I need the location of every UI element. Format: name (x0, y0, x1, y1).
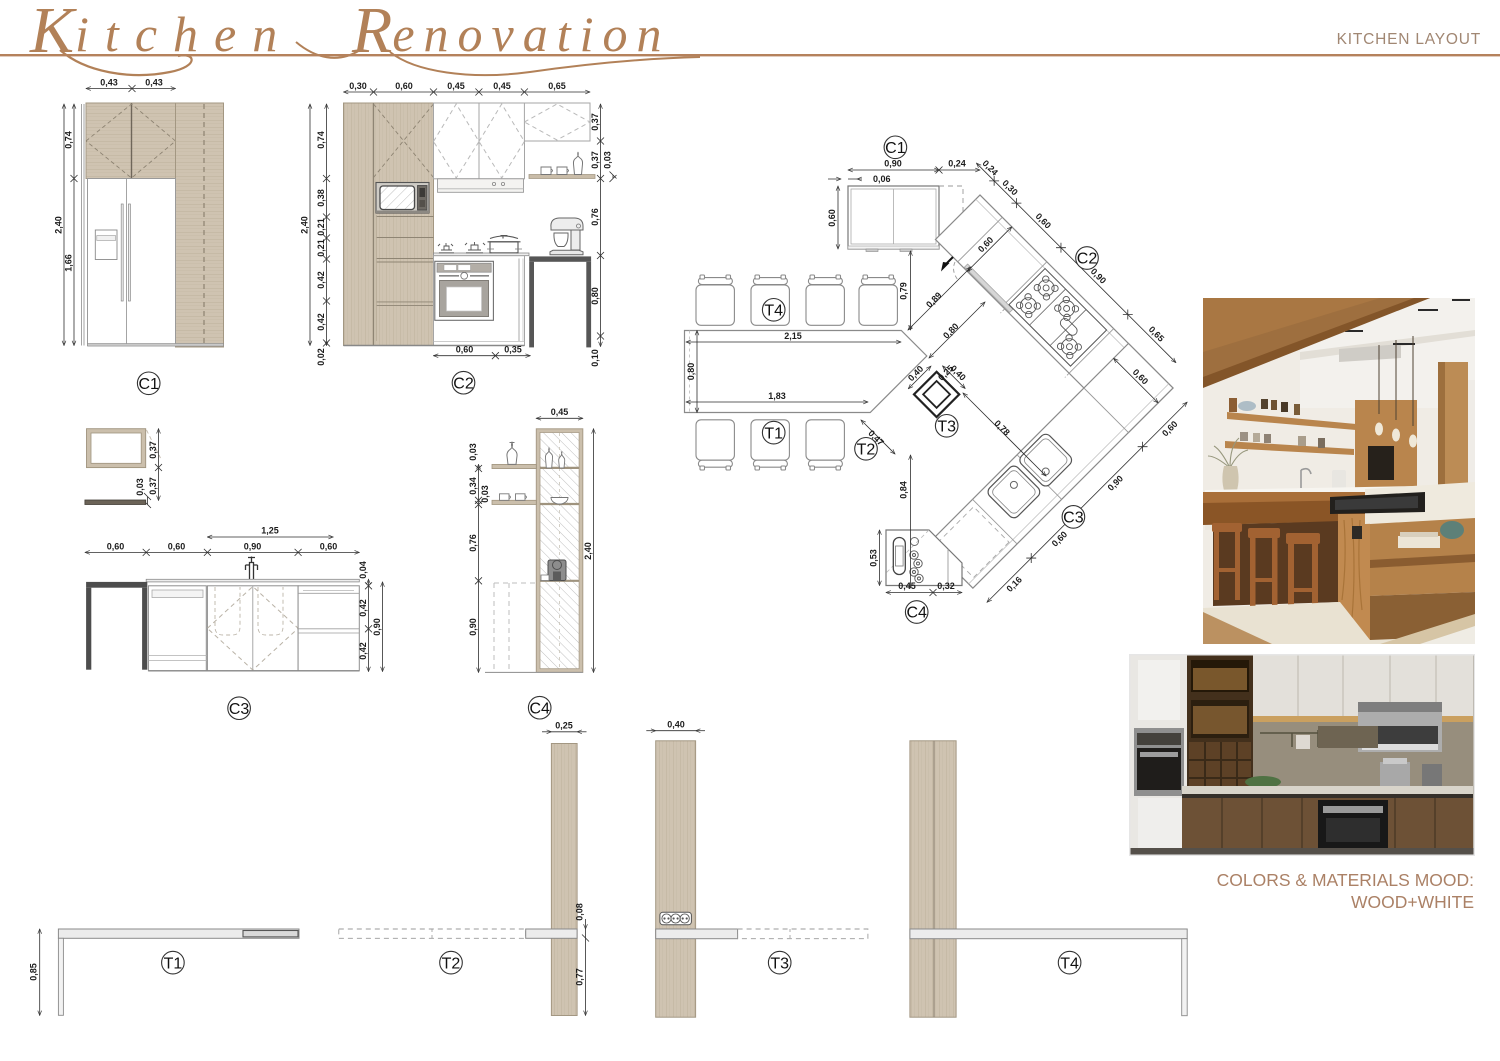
svg-text:0,80: 0,80 (686, 363, 696, 381)
svg-text:0,60: 0,60 (456, 345, 474, 355)
svg-text:0,45: 0,45 (493, 81, 511, 91)
svg-text:2,40: 2,40 (54, 216, 64, 234)
svg-text:0,53: 0,53 (869, 549, 879, 567)
svg-text:0,90: 0,90 (468, 618, 478, 636)
svg-text:0,32: 0,32 (937, 581, 955, 591)
svg-text:0,60: 0,60 (320, 541, 338, 551)
svg-text:0,25: 0,25 (555, 721, 573, 731)
svg-text:C4: C4 (529, 700, 550, 717)
svg-text:COLORS & MATERIALS MOOD:: COLORS & MATERIALS MOOD: (1217, 870, 1474, 890)
svg-text:0,80: 0,80 (590, 287, 600, 305)
svg-text:0,10: 0,10 (590, 349, 600, 367)
svg-text:0,60: 0,60 (168, 541, 186, 551)
svg-text:T4: T4 (1060, 955, 1079, 972)
svg-text:1,83: 1,83 (768, 391, 786, 401)
svg-text:0,06: 0,06 (873, 174, 891, 184)
svg-text:0,35: 0,35 (504, 345, 522, 355)
svg-text:0,76: 0,76 (468, 534, 478, 552)
svg-text:0,03: 0,03 (468, 443, 478, 461)
svg-text:0,60: 0,60 (395, 81, 413, 91)
svg-text:0,37: 0,37 (148, 477, 158, 495)
svg-text:0,03: 0,03 (480, 485, 490, 503)
svg-text:0,77: 0,77 (575, 968, 585, 986)
svg-text:0,45: 0,45 (447, 81, 465, 91)
svg-text:0,34: 0,34 (468, 477, 478, 495)
svg-text:T1: T1 (764, 425, 783, 442)
svg-text:0,30: 0,30 (349, 81, 367, 91)
svg-text:0,85: 0,85 (29, 963, 39, 981)
svg-text:0,74: 0,74 (316, 131, 326, 149)
svg-text:0,60: 0,60 (107, 541, 125, 551)
svg-text:1,66: 1,66 (64, 254, 74, 272)
svg-text:2,15: 2,15 (784, 331, 802, 341)
svg-text:0,21: 0,21 (316, 218, 326, 236)
svg-text:0,03: 0,03 (603, 151, 613, 169)
svg-text:WOOD+WHITE: WOOD+WHITE (1351, 892, 1474, 912)
svg-text:0,90: 0,90 (244, 541, 262, 551)
svg-text:0,42: 0,42 (316, 313, 326, 331)
svg-text:0,90: 0,90 (372, 618, 382, 636)
svg-text:0,37: 0,37 (148, 441, 158, 459)
svg-text:0,37: 0,37 (590, 151, 600, 169)
svg-text:0,45: 0,45 (551, 407, 569, 417)
svg-text:0,76: 0,76 (590, 208, 600, 226)
svg-text:0,38: 0,38 (316, 189, 326, 207)
svg-text:T3: T3 (770, 955, 789, 972)
svg-text:0,37: 0,37 (590, 113, 600, 131)
svg-text:0,84: 0,84 (899, 481, 909, 499)
svg-text:0,43: 0,43 (145, 78, 163, 88)
svg-text:T4: T4 (764, 303, 783, 320)
svg-text:0,02: 0,02 (316, 348, 326, 366)
svg-text:0,43: 0,43 (100, 78, 118, 88)
svg-text:2,40: 2,40 (583, 542, 593, 560)
svg-text:C1: C1 (885, 140, 906, 157)
svg-text:0,60: 0,60 (827, 209, 837, 227)
svg-text:0,42: 0,42 (358, 599, 368, 617)
svg-text:0,65: 0,65 (548, 81, 566, 91)
svg-text:C2: C2 (453, 375, 474, 392)
svg-text:0,21: 0,21 (316, 239, 326, 257)
svg-text:C2: C2 (1077, 251, 1098, 268)
svg-text:0,03: 0,03 (135, 478, 145, 496)
svg-text:C4: C4 (906, 605, 927, 622)
svg-text:0,40: 0,40 (667, 719, 685, 729)
svg-text:0,90: 0,90 (884, 159, 902, 169)
svg-text:1,25: 1,25 (261, 526, 279, 536)
svg-text:0,04: 0,04 (358, 561, 368, 579)
svg-text:T2: T2 (442, 955, 461, 972)
svg-text:0,08: 0,08 (575, 903, 585, 921)
svg-text:0,79: 0,79 (899, 282, 909, 300)
svg-text:0,42: 0,42 (358, 642, 368, 660)
svg-text:0,24: 0,24 (948, 159, 966, 169)
svg-text:C1: C1 (138, 376, 159, 393)
svg-text:C3: C3 (1063, 510, 1084, 527)
svg-text:T1: T1 (164, 955, 183, 972)
svg-text:0,42: 0,42 (316, 271, 326, 289)
svg-text:2,40: 2,40 (300, 216, 310, 234)
svg-text:0,45: 0,45 (898, 581, 916, 591)
svg-text:T2: T2 (857, 442, 876, 459)
svg-text:KITCHEN LAYOUT: KITCHEN LAYOUT (1337, 31, 1481, 48)
svg-text:0,74: 0,74 (64, 131, 74, 149)
svg-text:C3: C3 (229, 701, 250, 718)
svg-text:T3: T3 (937, 419, 956, 436)
